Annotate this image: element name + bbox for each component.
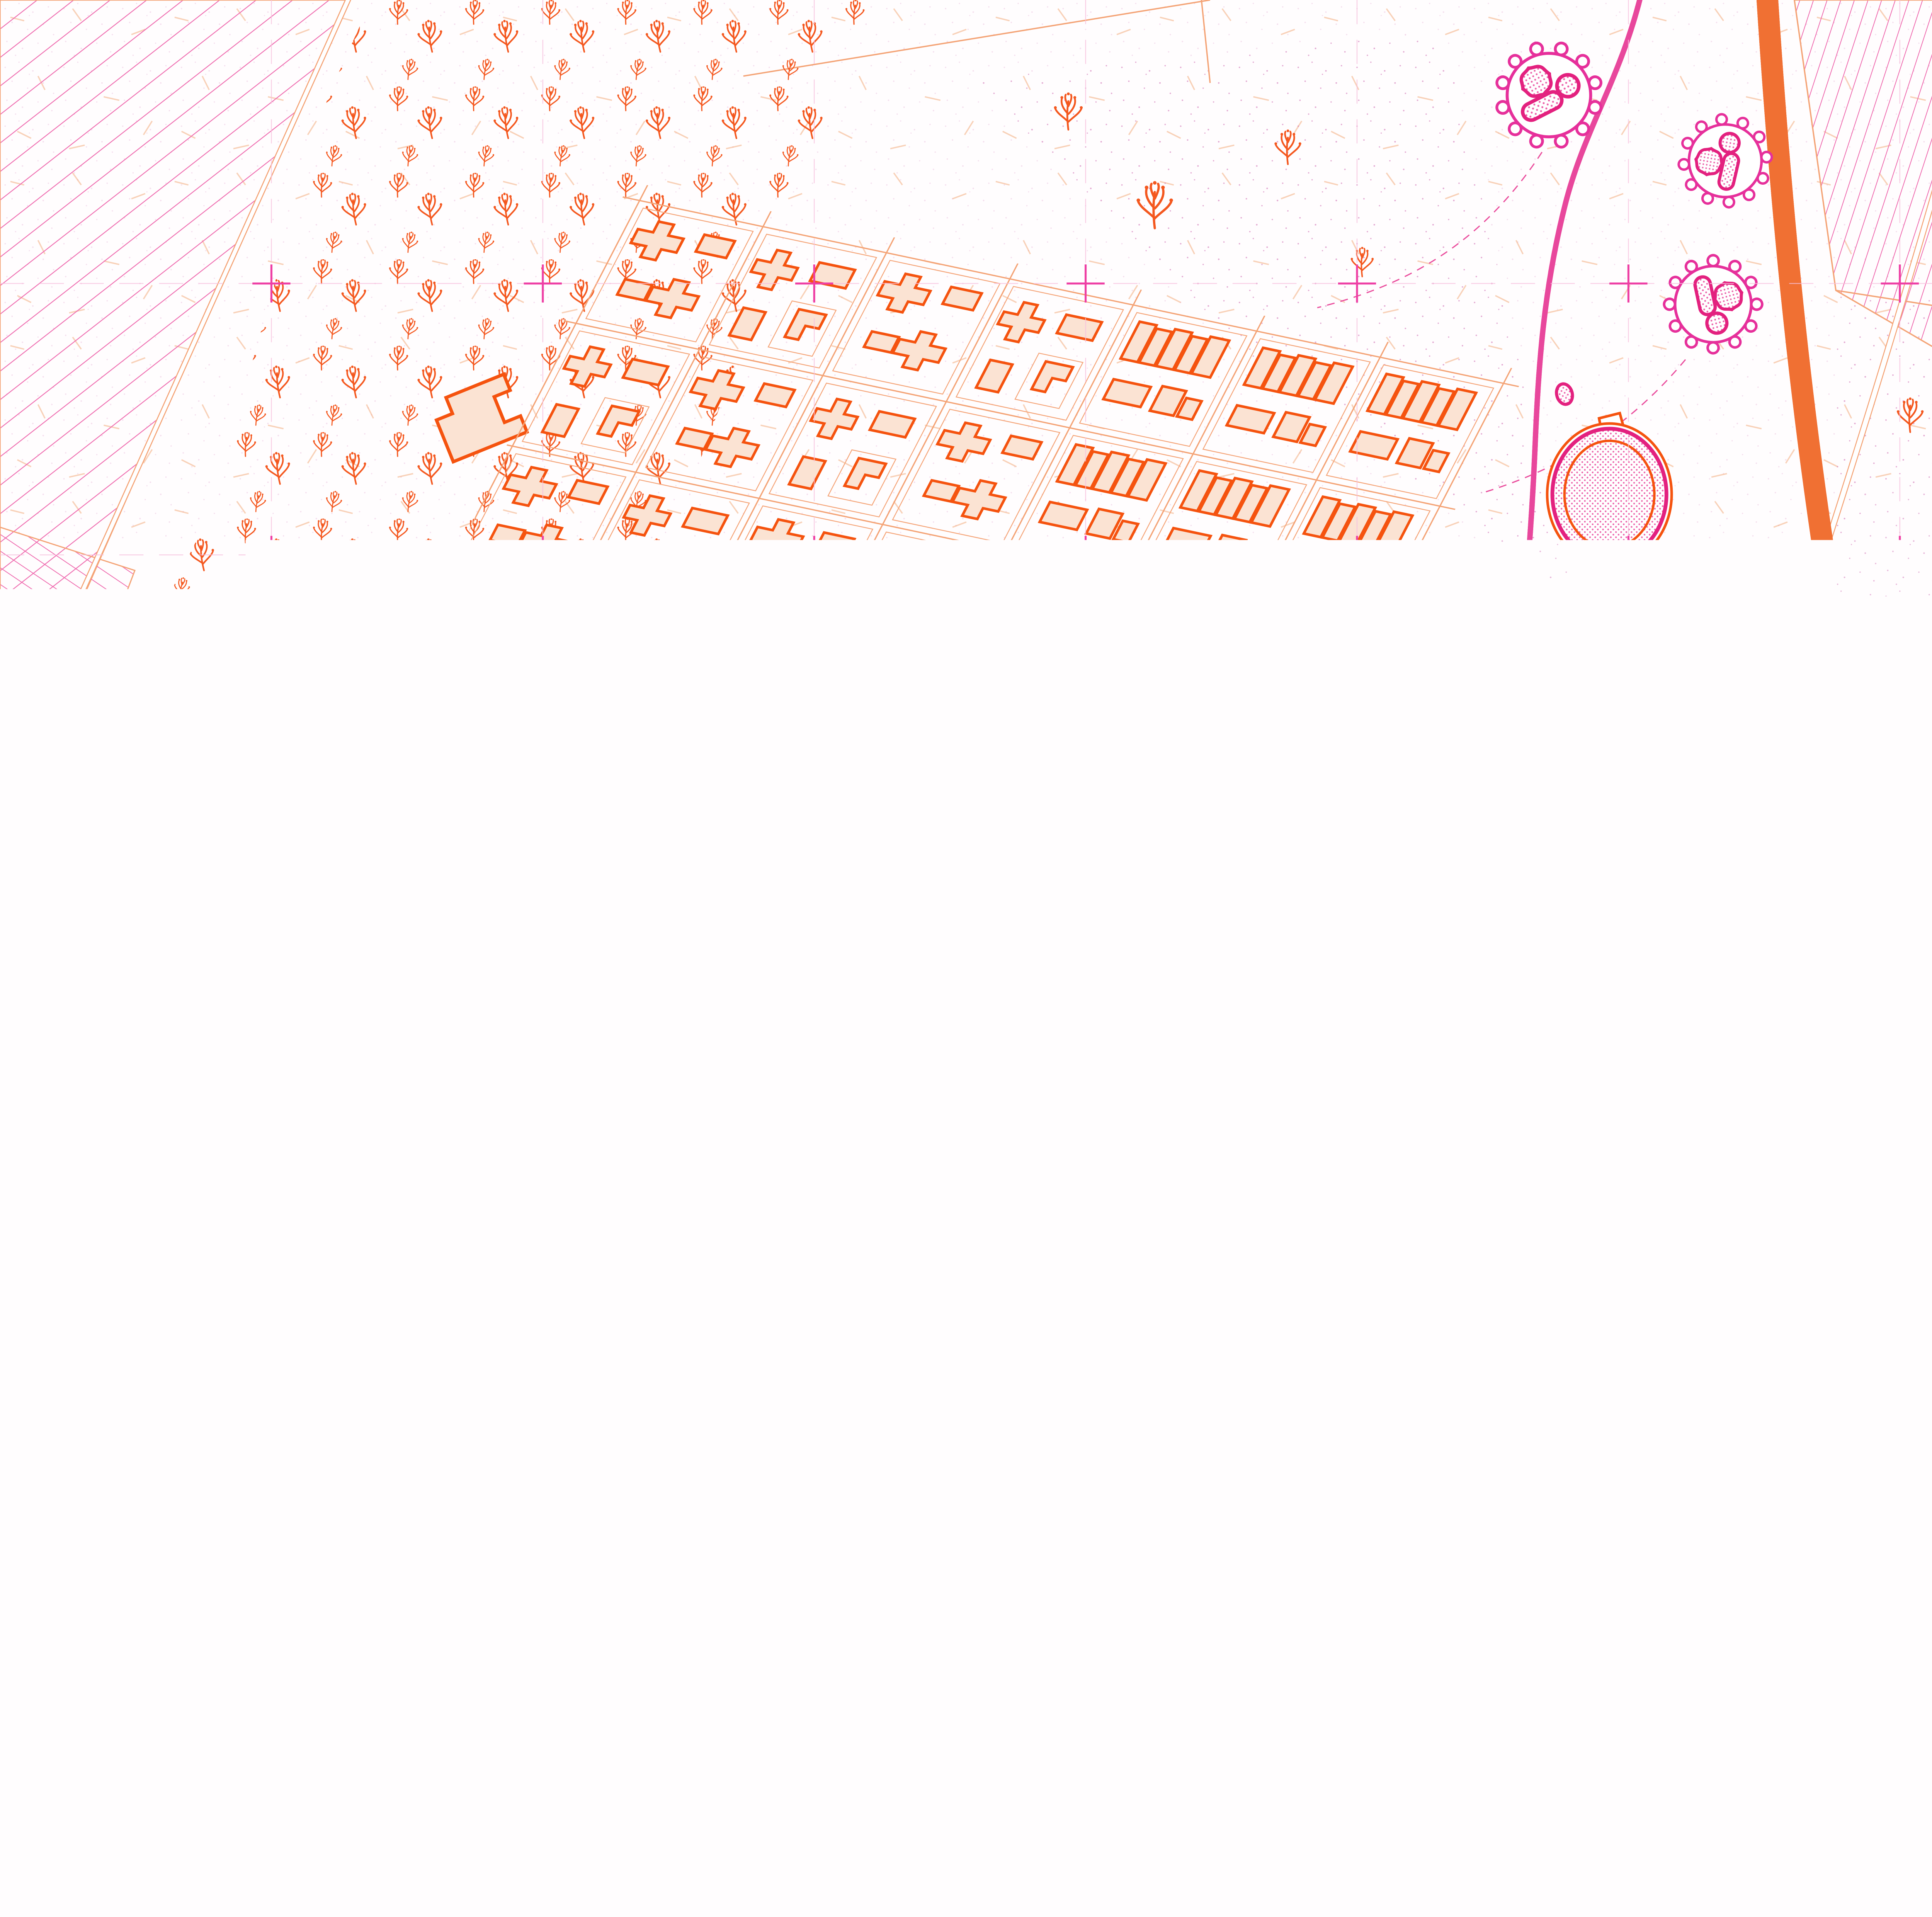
drawing-scale: e 1:2500 — [58, 1801, 440, 1825]
tent-northwest — [377, 1160, 519, 1288]
festival-logo: ✦ ✦ QUIOTE LAND QUIOTE LAND — [122, 1559, 376, 1664]
drawing-title-line2: fase 2 — [58, 1751, 440, 1791]
drawing-sheet: FASE 2. 2029 CRECIMIENTO Y EXPANSIÓN Se … — [0, 0, 1932, 1917]
pentagon-tent — [423, 1315, 475, 1367]
sparkle-icon: ✦ — [379, 1632, 410, 1666]
author-name: marcos oses provedo — [58, 1680, 440, 1705]
tent-southeast — [956, 1623, 1093, 1760]
services-cluster — [910, 1305, 1116, 1496]
sparkle-icon: ✦ — [92, 1555, 122, 1589]
central-plaza — [646, 1457, 741, 1550]
title-block: ✦ ✦ QUIOTE LAND QUIOTE LAND marcos oses … — [58, 1559, 440, 1825]
tent-south — [669, 1760, 788, 1877]
drawing-title-line1: planta general — [58, 1710, 440, 1751]
